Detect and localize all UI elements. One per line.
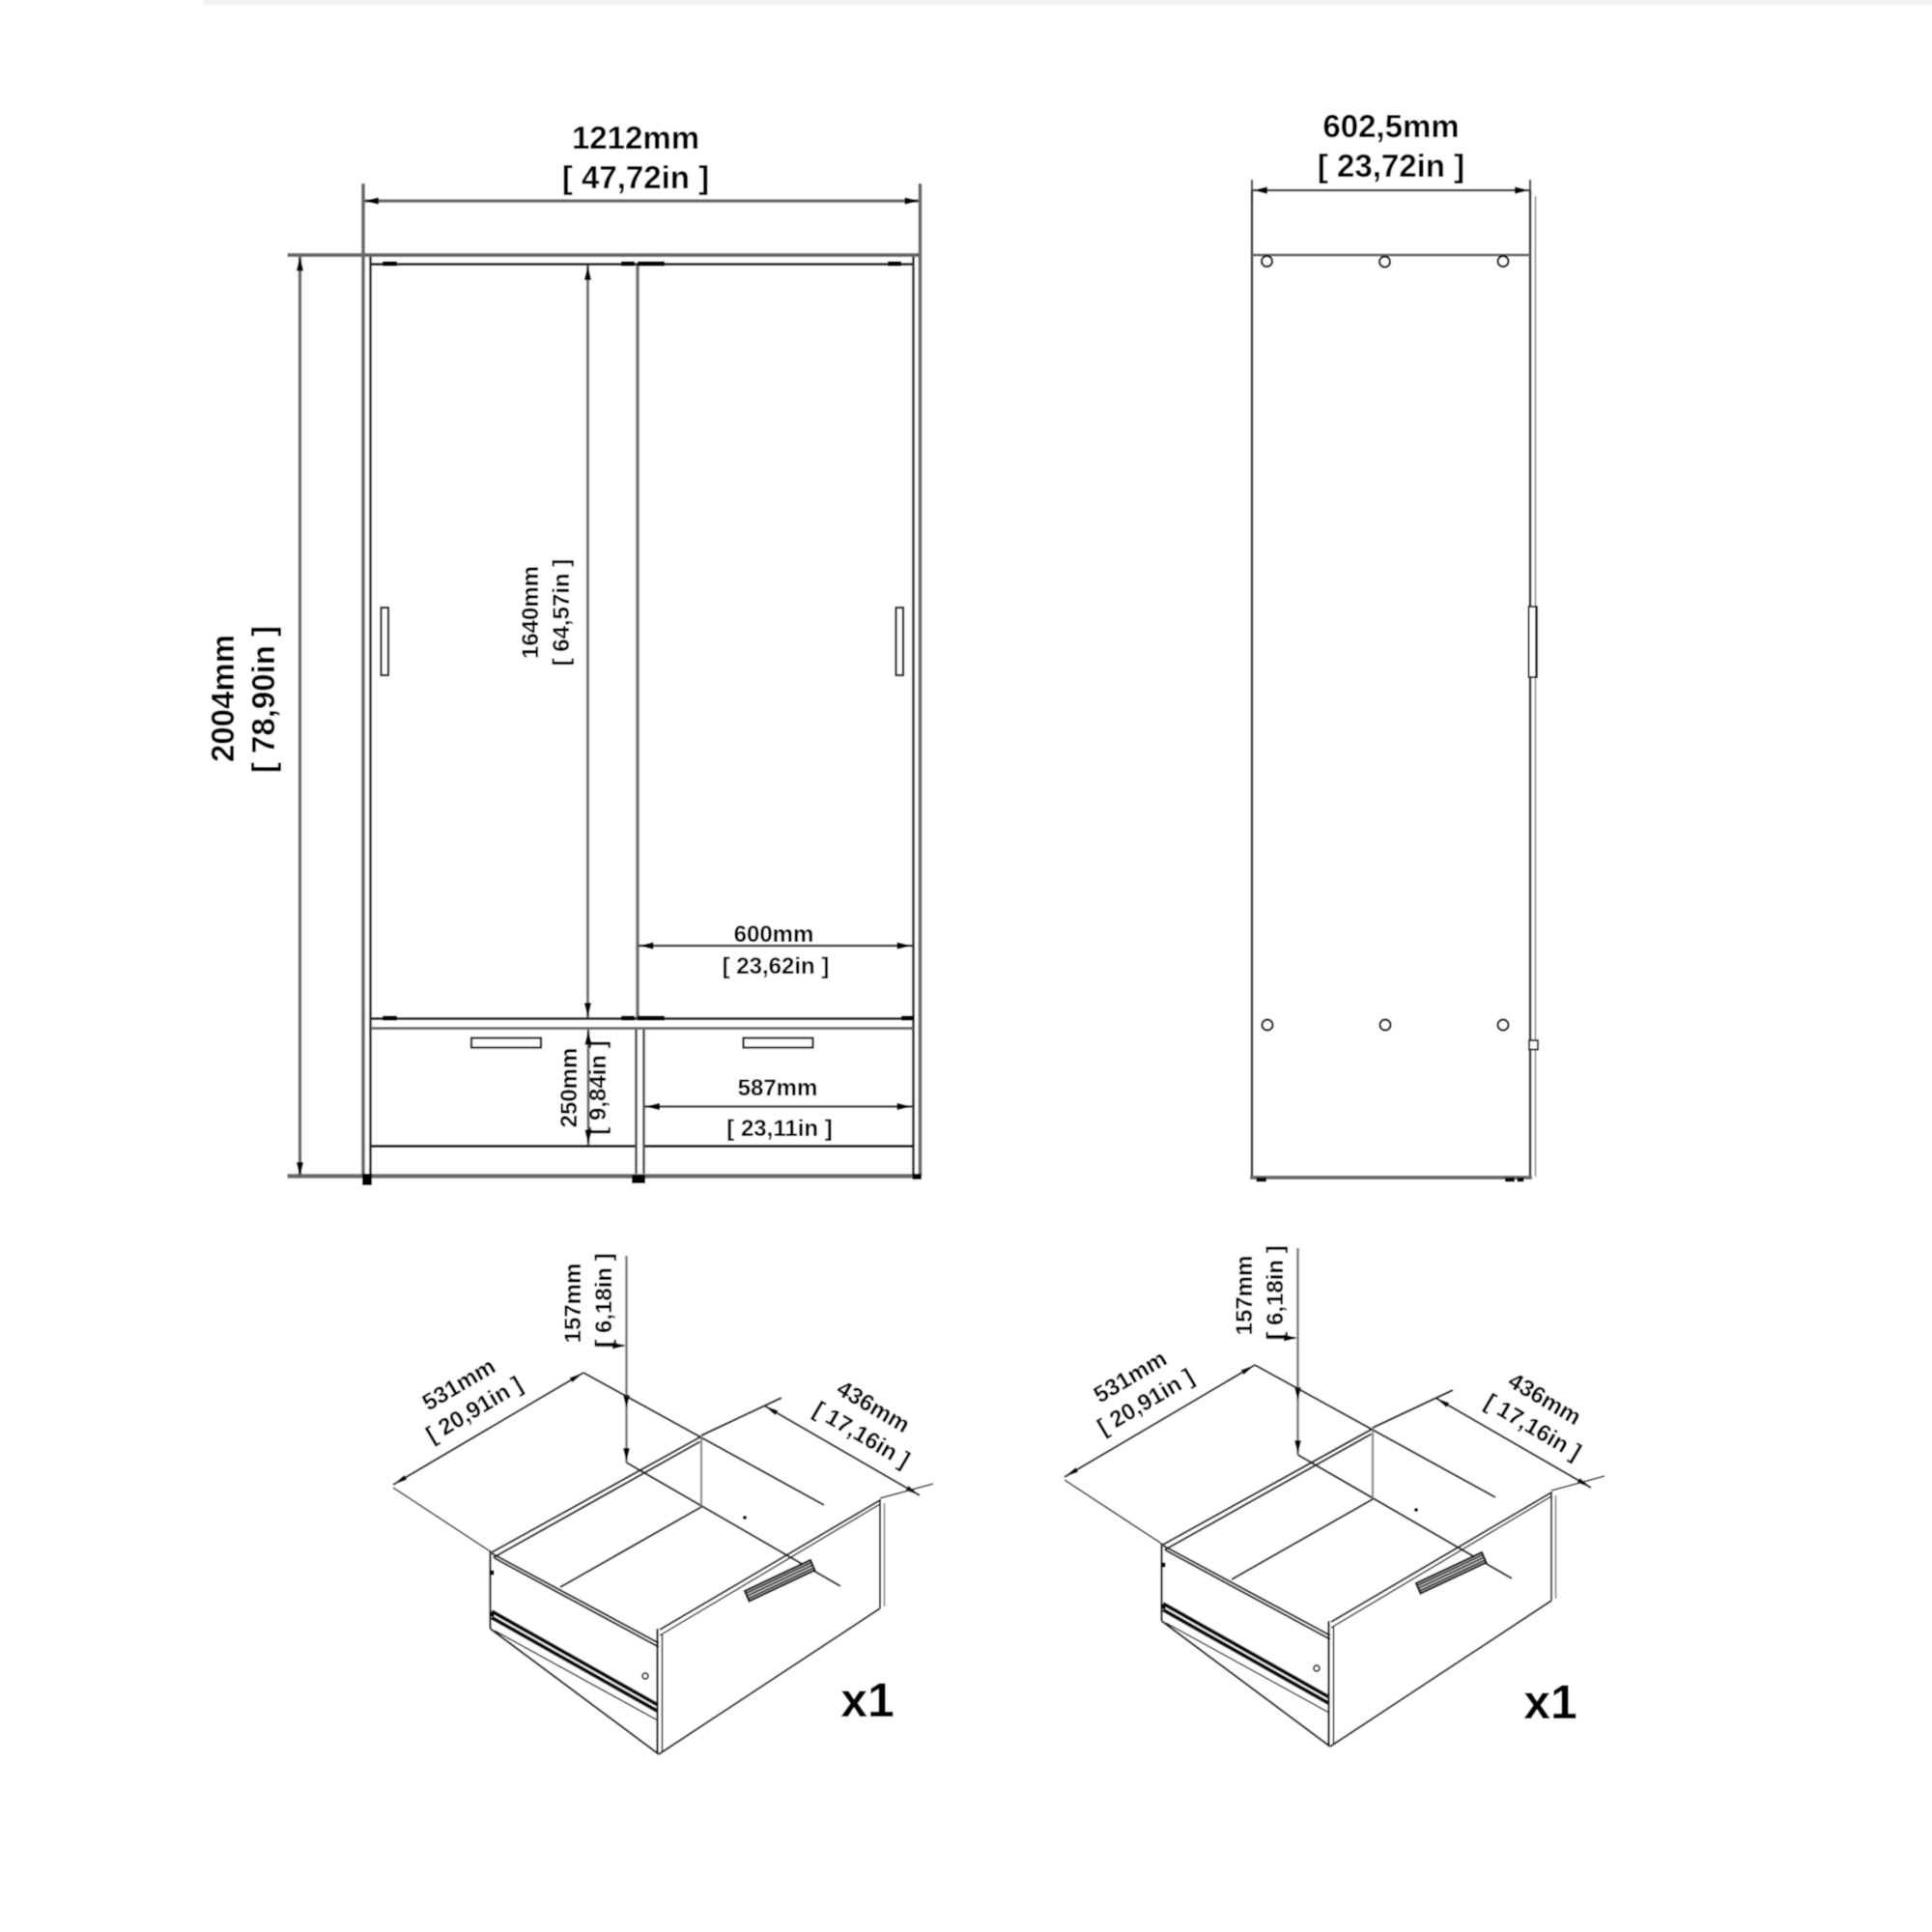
svg-text:250mm: 250mm	[556, 1048, 582, 1128]
svg-text:602,5mm: 602,5mm	[1322, 108, 1459, 144]
svg-text:587mm: 587mm	[738, 1075, 818, 1101]
svg-text:[ 64,57in ]: [ 64,57in ]	[549, 559, 575, 667]
svg-text:x1: x1	[840, 1673, 895, 1727]
svg-text:[ 23,62in ]: [ 23,62in ]	[723, 953, 830, 980]
svg-text:600mm: 600mm	[734, 922, 814, 948]
svg-text:[ 23,11in ]: [ 23,11in ]	[726, 1116, 832, 1142]
svg-text:1640mm: 1640mm	[518, 566, 544, 659]
svg-text:[ 23,72in ]: [ 23,72in ]	[1318, 148, 1464, 184]
svg-text:[ 78,90in ]: [ 78,90in ]	[245, 626, 281, 773]
svg-text:[ 47,72in ]: [ 47,72in ]	[562, 159, 709, 195]
svg-text:157mm: 157mm	[560, 1264, 586, 1344]
svg-text:[ 6,18in ]: [ 6,18in ]	[591, 1253, 617, 1347]
svg-text:1212mm: 1212mm	[572, 120, 699, 156]
svg-text:2004mm: 2004mm	[205, 635, 241, 762]
svg-text:x1: x1	[1523, 1675, 1577, 1729]
svg-text:[ 9,84in ]: [ 9,84in ]	[585, 1040, 611, 1134]
